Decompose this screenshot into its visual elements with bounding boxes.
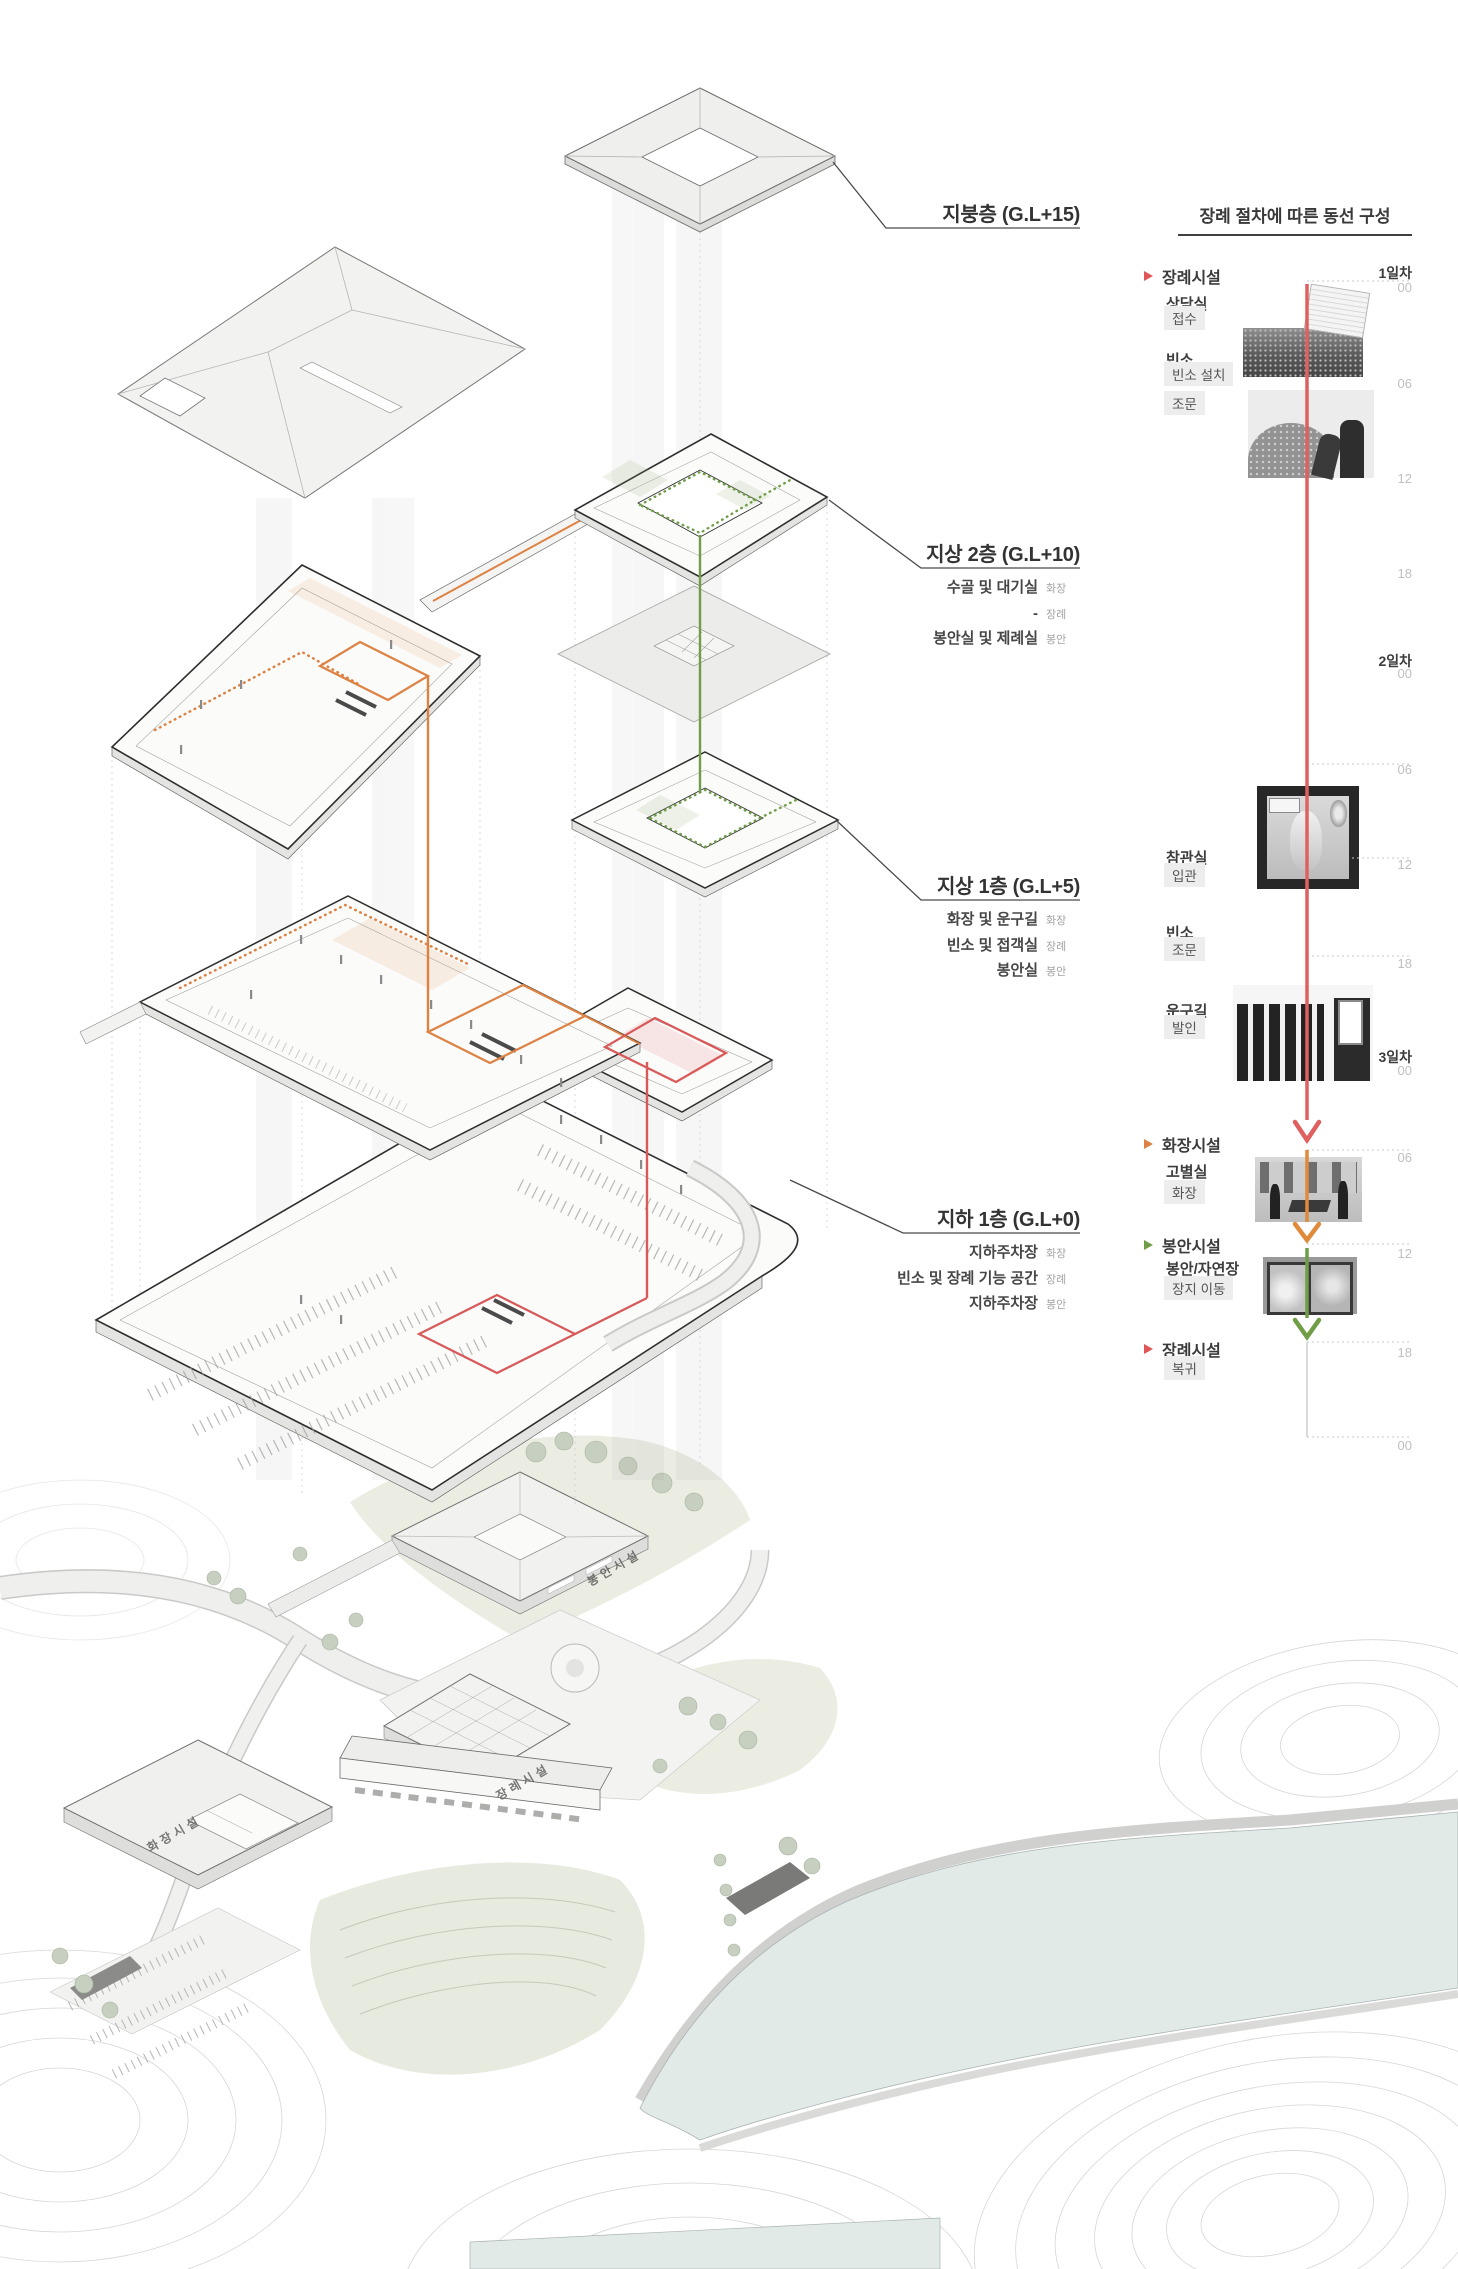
time-tick: 00 — [1330, 666, 1412, 681]
floor-label-1f: 지상 1층 (G.L+5) 화장 및 운구길화장 빈소 및 접객실장례 봉안실봉… — [760, 870, 1080, 981]
label-tag-shape — [1269, 798, 1300, 812]
leader-lines — [790, 162, 1080, 1233]
urn-casketing-photo — [1257, 786, 1359, 889]
mourner-shape — [1340, 420, 1364, 478]
floor-label-2f: 지상 2층 (G.L+10) 수골 및 대기실화장 -장례 봉안실 및 제례실봉… — [760, 538, 1080, 649]
site-label-cremation: 화장시설 — [144, 1811, 205, 1856]
floor-title: 지하 1층 (G.L+0) — [760, 1203, 1080, 1232]
urn-shape — [1290, 811, 1323, 871]
action-label: 복귀 — [1164, 1356, 1205, 1380]
pallbearers-shape — [1237, 1004, 1324, 1081]
program-row: 봉안실봉안 — [760, 962, 1080, 981]
niche-cell-shape — [1267, 1262, 1312, 1316]
ramp — [726, 1862, 810, 1915]
basement-plate — [96, 1082, 798, 1502]
dropoff-circle — [551, 1644, 599, 1692]
program-row: 지하주차장봉안 — [760, 1295, 1080, 1314]
red-arrow-icon — [1295, 1122, 1319, 1140]
facility-marker-icon — [1144, 271, 1153, 281]
action-label: 입관 — [1164, 863, 1205, 887]
plaza — [380, 1610, 760, 1800]
water-body — [470, 1804, 1458, 2269]
facility-row-cremation: 화장시설 — [1144, 1132, 1221, 1156]
time-tick: 00 — [1330, 1063, 1412, 1078]
time-tick: 06 — [1330, 376, 1412, 391]
niche-cell-shape — [1308, 1262, 1353, 1316]
condolence-photo — [1248, 390, 1374, 478]
action-label: 발인 — [1164, 1015, 1205, 1039]
second-floor-west-plate — [112, 565, 480, 859]
first-floor-plate — [80, 896, 772, 1160]
floor-title: 지상 2층 (G.L+10) — [760, 538, 1080, 567]
facility-marker-icon — [1144, 1139, 1153, 1149]
program-row: 봉안실 및 제례실봉안 — [760, 630, 1080, 649]
projection-guides — [112, 226, 827, 1505]
trees — [52, 1432, 820, 2018]
floor-title: 지상 1층 (G.L+5) — [760, 870, 1080, 899]
time-tick: 06 — [1330, 762, 1412, 777]
time-tick: 12 — [1330, 471, 1412, 486]
action-label: 빈소 설치 — [1164, 362, 1233, 386]
action-label: 화장 — [1164, 1180, 1205, 1204]
main-roof-plane — [118, 247, 525, 498]
action-label: 조문 — [1164, 391, 1205, 415]
projection-bands — [256, 158, 722, 1480]
floor-label-roof: 지붕층 (G.L+15) — [760, 198, 1080, 239]
program-row: -장례 — [760, 605, 1080, 624]
time-tick: 00 — [1330, 280, 1412, 295]
action-label: 접수 — [1164, 306, 1205, 330]
site-roads — [0, 1550, 760, 2010]
time-tick: 18 — [1330, 1345, 1412, 1360]
cremation-photo — [1255, 1157, 1362, 1222]
circulation-routes — [180, 535, 726, 1373]
dropoff-island — [566, 1659, 584, 1677]
action-label: 장지 이동 — [1164, 1276, 1233, 1300]
terrace-garden-lines — [340, 1898, 615, 2014]
program-row: 수골 및 대기실화장 — [760, 579, 1080, 598]
floor-title: 지붕층 (G.L+15) — [760, 198, 1080, 227]
coffin-shape — [1288, 1200, 1331, 1212]
columns — [250, 935, 562, 1087]
lawn-areas — [310, 1435, 837, 2074]
time-tick: 18 — [1330, 566, 1412, 581]
attendant-shape — [1338, 1181, 1348, 1219]
site-label-funeral: 장례시설 — [493, 1759, 554, 1804]
time-tick: 12 — [1330, 857, 1412, 872]
program-row: 빈소 및 장례 기능 공간장례 — [760, 1270, 1080, 1289]
facility-marker-icon — [1144, 1344, 1153, 1354]
time-tick: 18 — [1330, 956, 1412, 971]
time-tick: 06 — [1330, 1150, 1412, 1165]
attendant-shape — [1270, 1184, 1280, 1219]
facility-row-enshrinement: 봉안시설 — [1144, 1233, 1221, 1257]
orange-arrow-icon — [1295, 1224, 1319, 1240]
program-row: 빈소 및 접객실장례 — [760, 937, 1080, 956]
site-parking — [50, 1908, 300, 2074]
site-building-enshrinement — [268, 1472, 648, 1617]
time-tick: 00 — [1330, 1438, 1412, 1453]
exploded-axonometric-drawing — [0, 0, 1458, 2269]
ramp — [70, 1956, 142, 2000]
presentation-board: 지붕층 (G.L+15) 지상 2층 (G.L+10) 수골 및 대기실화장 -… — [0, 0, 1458, 2269]
reception-altar-photo — [1243, 292, 1363, 377]
program-row: 화장 및 운구길화장 — [760, 911, 1080, 930]
facility-marker-icon — [1144, 1240, 1153, 1250]
action-label: 조문 — [1164, 937, 1205, 961]
green-arrow-icon — [1295, 1320, 1319, 1337]
facility-row-funeral: 장례시설 — [1144, 264, 1221, 288]
floor-label-b1: 지하 1층 (G.L+0) 지하주차장화장 빈소 및 장례 기능 공간장례 지하… — [760, 1203, 1080, 1314]
site-plan — [0, 1432, 1458, 2269]
time-tick: 12 — [1330, 1246, 1412, 1261]
room-label: 고별실 — [1166, 1161, 1207, 1182]
portrait-frame-shape — [1338, 1000, 1363, 1044]
columns — [300, 1115, 682, 1324]
site-building-funeral — [340, 1736, 612, 1820]
columbarium-photo — [1263, 1257, 1357, 1314]
site-label-enshrinement: 봉안시설 — [584, 1545, 645, 1590]
program-row: 지하주차장화장 — [760, 1244, 1080, 1263]
timeline-panel-title: 장례 절차에 따른 동선 구성 — [1178, 202, 1412, 236]
flower-shape — [1330, 800, 1346, 827]
contour-lines — [0, 1480, 1458, 2269]
